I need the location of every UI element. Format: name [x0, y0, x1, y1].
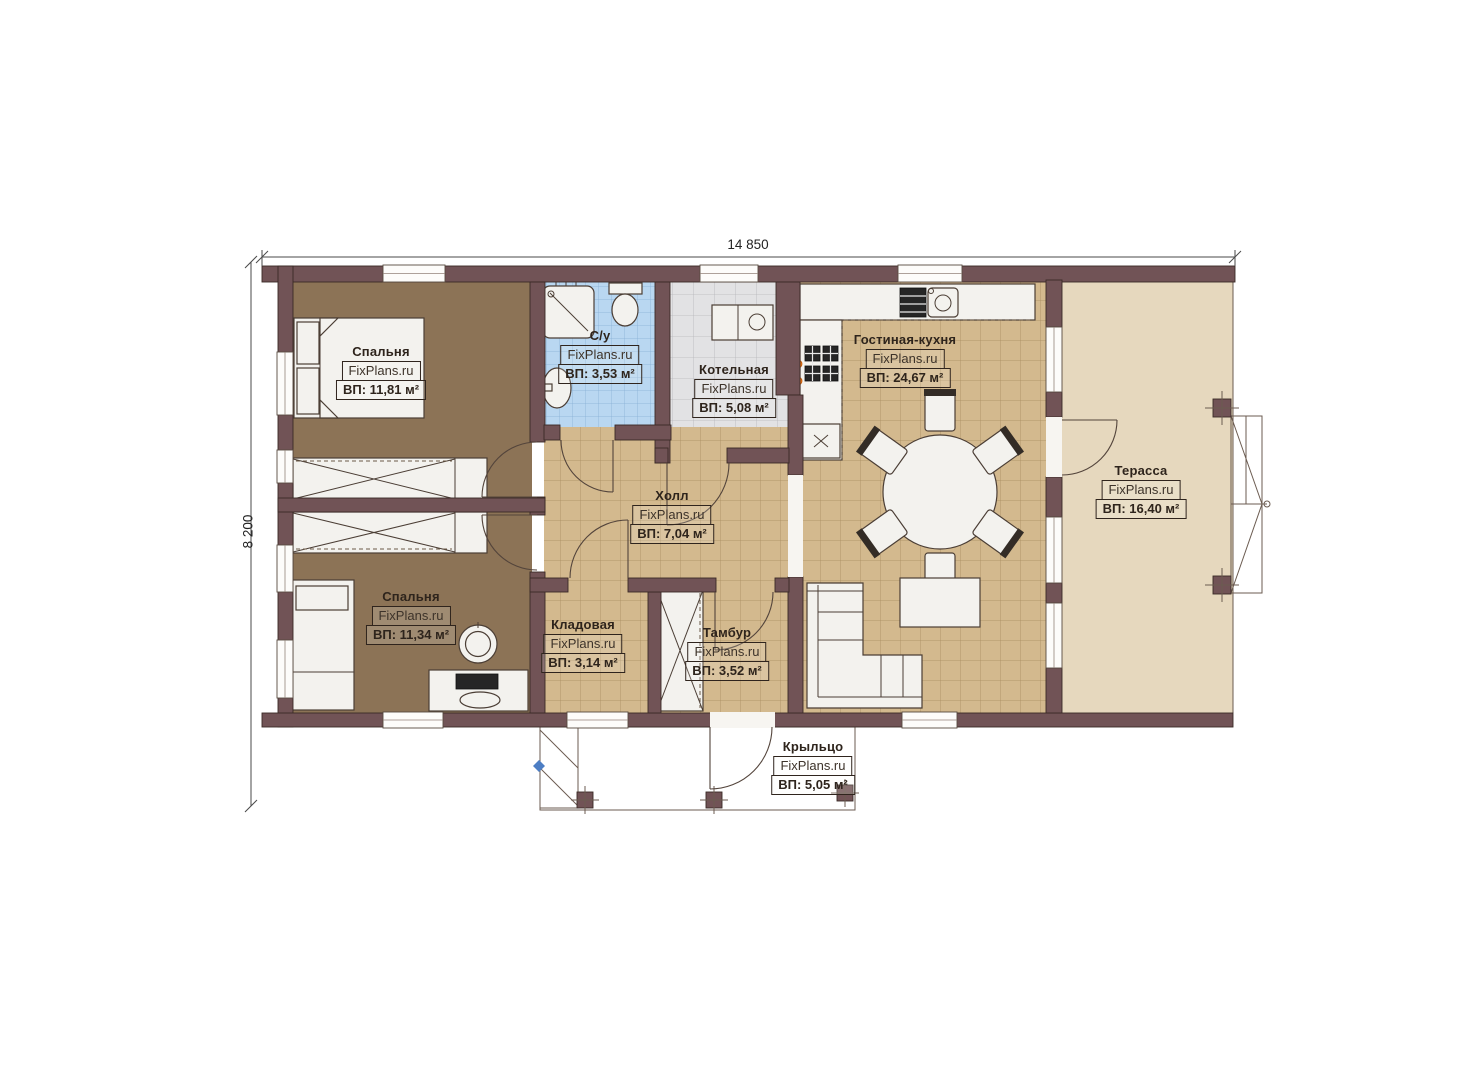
wardrobe-closet-top: [293, 458, 487, 500]
wall-terrace-seg3: [1046, 477, 1062, 517]
room-name: С/у: [558, 328, 642, 343]
window-top-kitchen: [898, 265, 962, 282]
bed-single: [291, 580, 354, 710]
room-area: ВП: 11,81 м²: [336, 380, 426, 400]
wall-bedroom-divider: [278, 498, 545, 512]
room-label-bedroom-1: Спальня FixPlans.ru ВП: 11,81 м²: [336, 344, 426, 400]
window-bottom-storage: [567, 712, 628, 728]
watermark: FixPlans.ru: [1101, 480, 1180, 500]
opening-porch-door: [710, 712, 775, 728]
wall-vestibule-living: [788, 577, 803, 713]
room-name: Тамбур: [685, 625, 769, 640]
window-terrace-3: [1046, 603, 1062, 668]
window-terrace-2: [1046, 517, 1062, 583]
wall-terrace-seg5: [1046, 668, 1062, 713]
wall-boiler-bottom-a: [655, 448, 668, 463]
floor-plan-drawing: [0, 0, 1473, 1080]
wardrobe-closet-bottom: [293, 512, 487, 553]
watermark: FixPlans.ru: [341, 361, 420, 381]
coffee-machine: [900, 288, 926, 317]
room-name: Крыльцо: [771, 739, 855, 754]
wall-bath-bottom-a: [544, 425, 560, 440]
window-left-bedroom2-a: [277, 545, 293, 592]
window-left-bedroom2-b: [277, 640, 293, 698]
room-area: ВП: 3,52 м²: [685, 661, 769, 681]
watermark: FixPlans.ru: [560, 345, 639, 365]
room-area: ВП: 3,14 м²: [541, 653, 625, 673]
window-terrace-1: [1046, 327, 1062, 392]
wall-boiler-kitchen: [776, 282, 800, 395]
room-label-vestibule: Тамбур FixPlans.ru ВП: 3,52 м²: [685, 625, 769, 681]
wall-storage-vestibule: [648, 592, 661, 713]
watermark: FixPlans.ru: [694, 379, 773, 399]
watermark: FixPlans.ru: [632, 505, 711, 525]
room-name: Котельная: [692, 362, 776, 377]
room-area: ВП: 5,08 м²: [692, 398, 776, 418]
wall-hall-kitchen-upper: [788, 395, 803, 475]
window-bottom-living: [902, 712, 957, 728]
room-label-terrace: Терасса FixPlans.ru ВП: 16,40 м²: [1096, 463, 1187, 519]
room-label-bathroom: С/у FixPlans.ru ВП: 3,53 м²: [558, 328, 642, 384]
watermark: FixPlans.ru: [687, 642, 766, 662]
room-name: Спальня: [336, 344, 426, 359]
kitchen-sink: [928, 288, 958, 317]
watermark: FixPlans.ru: [371, 606, 450, 626]
window-bottom-bedroom2: [383, 712, 443, 728]
room-name: Кладовая: [541, 617, 625, 632]
room-area: ВП: 16,40 м²: [1096, 499, 1187, 519]
base-cabinet: [802, 424, 840, 458]
desk: [429, 670, 528, 711]
watermark: FixPlans.ru: [865, 349, 944, 369]
window-top-boiler: [700, 265, 758, 282]
wall-bath-bottom-b: [615, 425, 671, 440]
level-marker: [533, 760, 545, 772]
room-label-storage: Кладовая FixPlans.ru ВП: 3,14 м²: [541, 617, 625, 673]
room-label-boiler-room: Котельная FixPlans.ru ВП: 5,08 м²: [692, 362, 776, 418]
porch-steps: [540, 727, 578, 808]
terrace-stairs: [1231, 416, 1270, 593]
floor-plan-page: 14 850 8 200 Спальня FixPlans.ru ВП: 11,…: [0, 0, 1473, 1080]
boiler-unit: [712, 305, 773, 340]
wall-terrace-seg2: [1046, 392, 1062, 417]
room-label-bedroom-2: Спальня FixPlans.ru ВП: 11,34 м²: [366, 589, 456, 645]
room-area: ВП: 5,05 м²: [771, 775, 855, 795]
wall-boiler-bottom-b: [727, 448, 789, 463]
dimension-height-label: 8 200: [241, 487, 256, 577]
window-top-bedroom1: [383, 265, 445, 282]
wall-terrace-seg4: [1046, 583, 1062, 603]
wall-hall-bottom-a: [530, 578, 568, 592]
room-label-hall: Холл FixPlans.ru ВП: 7,04 м²: [630, 488, 714, 544]
window-left-bedroom1: [277, 352, 293, 415]
dimension-width-label: 14 850: [698, 237, 798, 252]
room-name: Спальня: [366, 589, 456, 604]
room-name: Терасса: [1096, 463, 1187, 478]
opening-hall-living: [788, 475, 803, 577]
window-left-closet: [277, 450, 293, 483]
door-porch: [710, 727, 772, 789]
wall-bedroom1-bath: [530, 282, 545, 442]
watermark: FixPlans.ru: [543, 634, 622, 654]
room-area: ВП: 24,67 м²: [860, 368, 951, 388]
room-name: Гостиная-кухня: [854, 332, 956, 347]
room-area: ВП: 7,04 м²: [630, 524, 714, 544]
wall-terrace-seg1: [1046, 280, 1062, 327]
room-label-porch: Крыльцо FixPlans.ru ВП: 5,05 м²: [771, 739, 855, 795]
coffee-table: [900, 578, 980, 627]
room-label-living-kitchen: Гостиная-кухня FixPlans.ru ВП: 24,67 м²: [854, 332, 956, 388]
room-area: ВП: 11,34 м²: [366, 625, 456, 645]
wall-hall-bottom-c: [775, 578, 789, 592]
wall-hall-bottom-b: [628, 578, 716, 592]
room-area: ВП: 3,53 м²: [558, 364, 642, 384]
opening-terrace-door: [1046, 417, 1062, 477]
room-name: Холл: [630, 488, 714, 503]
watermark: FixPlans.ru: [773, 756, 852, 776]
